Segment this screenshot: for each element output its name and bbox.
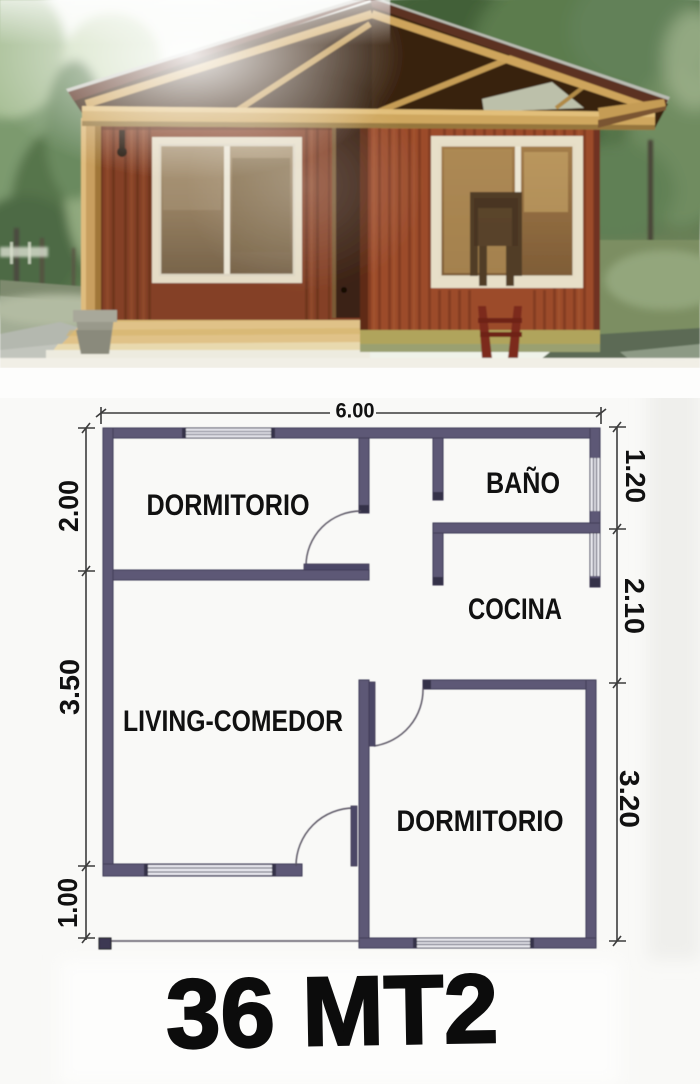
svg-text:1.20: 1.20 xyxy=(620,449,651,503)
svg-text:3.50: 3.50 xyxy=(54,659,85,715)
svg-text:2.00: 2.00 xyxy=(53,480,84,532)
svg-text:3.20: 3.20 xyxy=(614,770,645,828)
svg-text:36 MT2: 36 MT2 xyxy=(165,953,499,1069)
svg-text:DORMITORIO: DORMITORIO xyxy=(147,489,310,522)
svg-text:BAÑO: BAÑO xyxy=(486,466,560,500)
svg-text:1.00: 1.00 xyxy=(52,878,83,928)
svg-text:COCINA: COCINA xyxy=(468,593,562,626)
svg-text:6.00: 6.00 xyxy=(336,399,375,423)
svg-text:DORMITORIO: DORMITORIO xyxy=(397,805,564,838)
svg-text:LIVING-COMEDOR: LIVING-COMEDOR xyxy=(123,705,343,738)
svg-text:2.10: 2.10 xyxy=(619,578,650,634)
